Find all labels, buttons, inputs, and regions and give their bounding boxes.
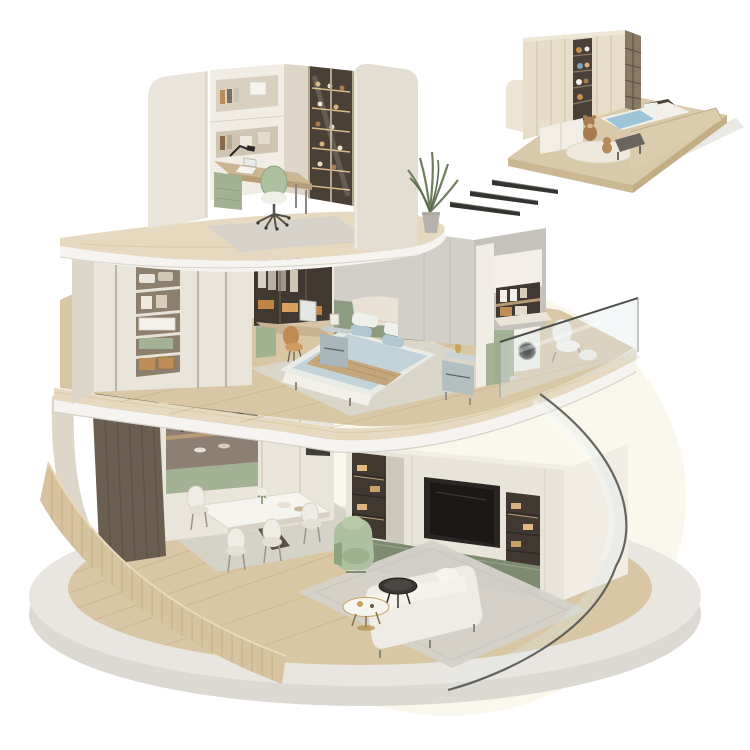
vanity-drawers	[256, 326, 276, 358]
study-wall-left	[148, 71, 208, 228]
tv-screen	[430, 482, 494, 544]
screenshot-canvas	[0, 0, 750, 750]
dollhouse-render	[0, 0, 750, 750]
module-toy-niche	[573, 38, 592, 124]
study-wall-right	[354, 64, 418, 251]
module-wall-left	[506, 80, 523, 132]
display-cabinet	[308, 66, 354, 206]
wardrobe-side	[72, 243, 94, 404]
armchair	[334, 516, 374, 572]
vanity-mirror	[300, 300, 316, 322]
tv-wall-strip	[386, 456, 404, 545]
plant-pot	[422, 212, 440, 233]
